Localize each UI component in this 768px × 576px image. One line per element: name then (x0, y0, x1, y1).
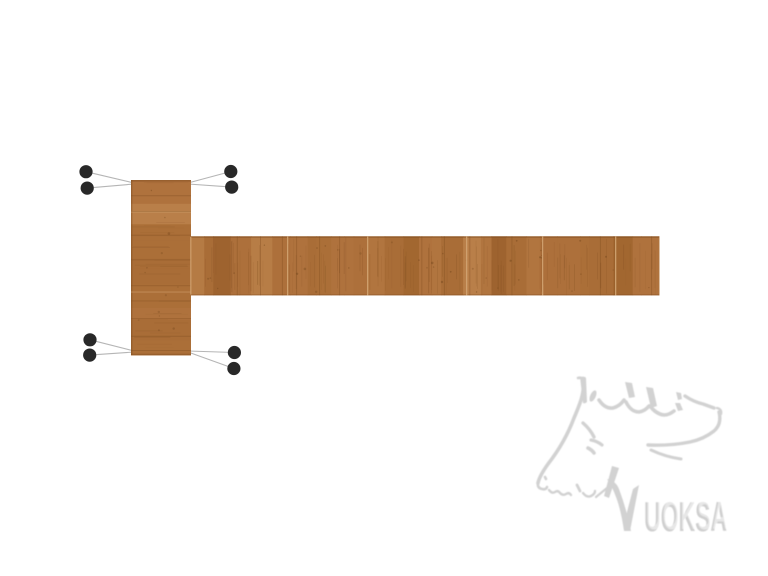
svg-text:UOKSA: UOKSA (646, 491, 729, 538)
